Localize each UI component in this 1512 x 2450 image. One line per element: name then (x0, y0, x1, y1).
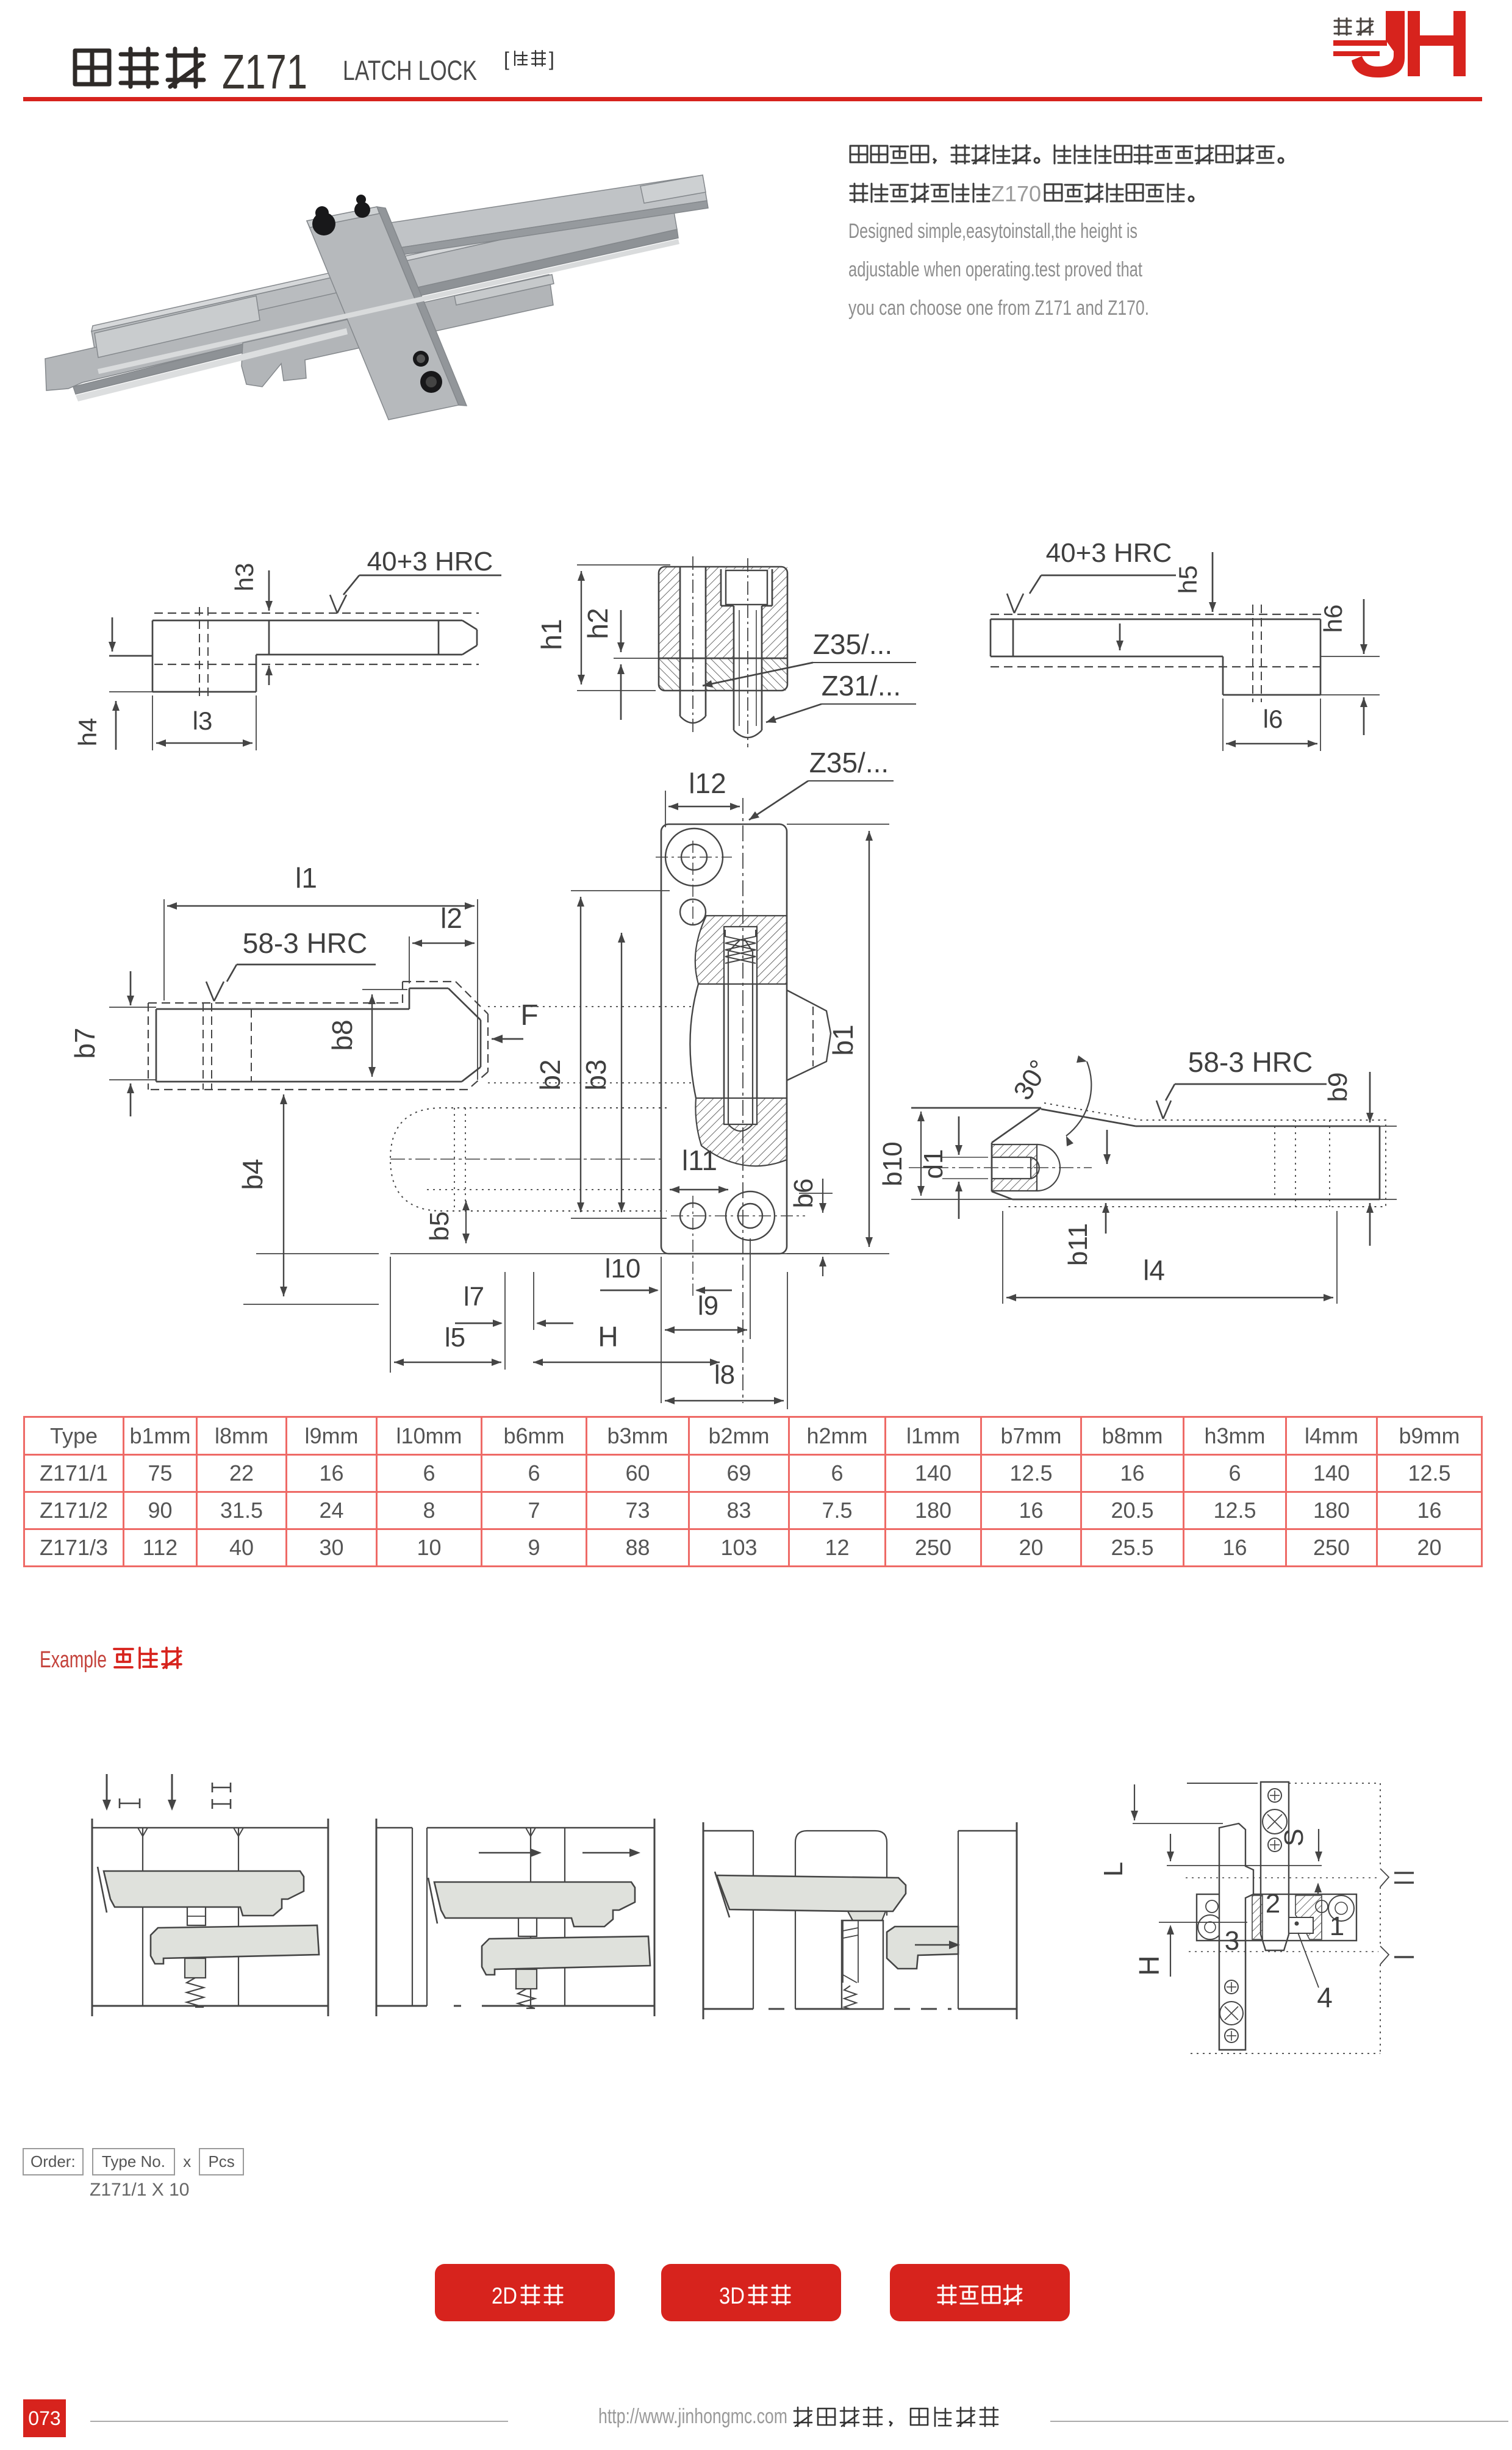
svg-text:h4: h4 (73, 718, 102, 747)
svg-text:L: L (1098, 1862, 1128, 1877)
svg-text:h6: h6 (1319, 605, 1347, 633)
svg-text:b8: b8 (326, 1019, 358, 1051)
svg-text:b3: b3 (580, 1059, 612, 1090)
svg-text:Z31/...: Z31/... (822, 670, 901, 702)
svg-text:Z35/...: Z35/... (813, 628, 892, 660)
svg-text:b11: b11 (1063, 1223, 1093, 1266)
svg-text:]: ] (549, 48, 554, 70)
svg-text:l1: l1 (295, 862, 317, 894)
svg-text:H: H (1133, 1955, 1165, 1975)
svg-text:40+3 HRC: 40+3 HRC (367, 547, 493, 577)
svg-text:30°: 30° (1008, 1055, 1055, 1105)
svg-text:l8: l8 (714, 1360, 735, 1390)
svg-text:b1: b1 (827, 1024, 859, 1055)
svg-text:Z170: Z170 (991, 181, 1041, 206)
svg-text:l5: l5 (445, 1323, 465, 1353)
svg-text:58-3 HRC: 58-3 HRC (243, 927, 368, 959)
svg-text:l2: l2 (440, 902, 462, 934)
svg-text:h2: h2 (582, 608, 614, 639)
svg-text:l9: l9 (698, 1291, 718, 1321)
svg-text:2D: 2D (492, 2283, 517, 2309)
svg-text:3D: 3D (719, 2283, 745, 2309)
svg-text:40+3 HRC: 40+3 HRC (1046, 538, 1172, 568)
svg-text:[: [ (504, 48, 509, 70)
svg-text:b2: b2 (534, 1059, 566, 1090)
svg-text:Z171: Z171 (222, 45, 307, 99)
svg-text:Example: Example (40, 1647, 107, 1673)
svg-text:b10: b10 (878, 1141, 908, 1186)
svg-text:h3: h3 (230, 563, 259, 592)
svg-text:b5: b5 (425, 1212, 454, 1241)
svg-text:58-3 HRC: 58-3 HRC (1188, 1046, 1313, 1078)
svg-text:b9: b9 (1323, 1072, 1353, 1102)
svg-text:l10: l10 (605, 1254, 641, 1284)
svg-text:l3: l3 (193, 706, 213, 735)
svg-text:4: 4 (1317, 1981, 1333, 2013)
svg-text:b7: b7 (69, 1027, 101, 1058)
svg-text:http://www.jinhongmc.com: http://www.jinhongmc.com (598, 2405, 787, 2428)
svg-text:S: S (1279, 1828, 1309, 1846)
svg-text:adjustable when operating.test: adjustable when operating.test proved th… (848, 258, 1142, 281)
svg-text:you can choose one from Z171 a: you can choose one from Z171 and Z170. (848, 296, 1149, 320)
svg-text:LATCH LOCK: LATCH LOCK (343, 55, 477, 86)
svg-text:l4: l4 (1143, 1254, 1165, 1286)
svg-text:H: H (598, 1321, 618, 1353)
svg-text:1: 1 (1330, 1911, 1344, 1941)
svg-text:l7: l7 (464, 1282, 484, 1312)
svg-text:l12: l12 (689, 767, 726, 799)
svg-text:F: F (520, 999, 538, 1032)
svg-text:l11: l11 (682, 1144, 717, 1176)
svg-text:l6: l6 (1263, 705, 1283, 733)
svg-text:h1: h1 (536, 619, 567, 650)
svg-text:d1: d1 (919, 1149, 948, 1179)
svg-text:Designed simple,easytoinstall,: Designed simple,easytoinstall,the height… (848, 220, 1138, 243)
svg-text:Z35/...: Z35/... (809, 747, 889, 778)
svg-text:2: 2 (1266, 1889, 1280, 1919)
svg-text:b4: b4 (237, 1159, 268, 1190)
svg-text:h5: h5 (1173, 566, 1202, 594)
